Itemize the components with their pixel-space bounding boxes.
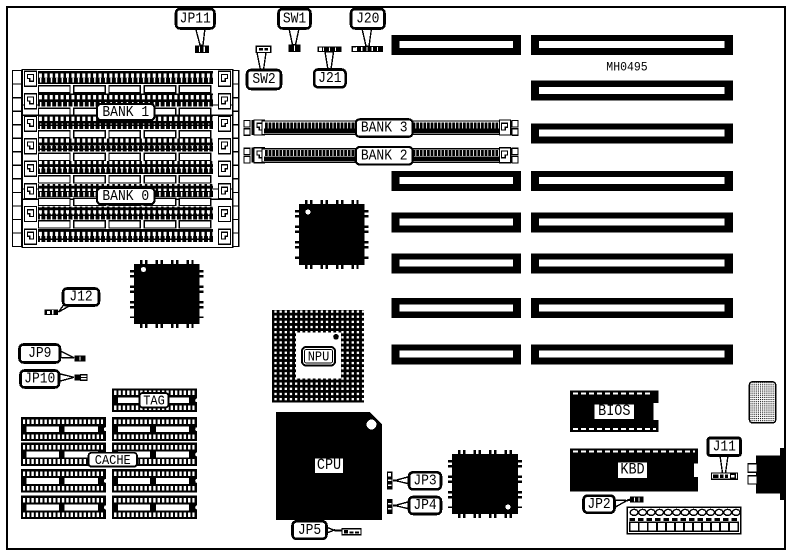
svg-text:BANK 2: BANK 2 [361,148,408,165]
svg-text:J20: J20 [356,11,379,28]
svg-text:SW1: SW1 [283,11,306,28]
svg-text:BANK 1: BANK 1 [102,104,149,121]
svg-text:JP5: JP5 [298,522,321,539]
svg-text:TAG: TAG [143,393,165,409]
svg-text:SW2: SW2 [252,72,275,89]
svg-text:BANK 3: BANK 3 [361,120,408,137]
svg-text:BANK 0: BANK 0 [102,188,149,205]
svg-text:JP9: JP9 [28,346,51,363]
svg-text:JP11: JP11 [180,11,211,28]
svg-text:J12: J12 [69,289,92,306]
svg-text:JP10: JP10 [24,371,55,388]
svg-text:BIOS: BIOS [598,404,630,421]
svg-text:J21: J21 [318,70,341,87]
svg-text:NPU: NPU [308,349,330,365]
svg-text:MH0495: MH0495 [606,60,647,75]
svg-text:JP3: JP3 [413,473,436,490]
svg-text:JP2: JP2 [587,496,610,513]
svg-text:J11: J11 [713,439,736,456]
svg-text:KBD: KBD [620,462,644,479]
svg-text:JP4: JP4 [413,498,436,515]
svg-text:CPU: CPU [317,458,341,475]
svg-text:CACHE: CACHE [95,452,131,468]
